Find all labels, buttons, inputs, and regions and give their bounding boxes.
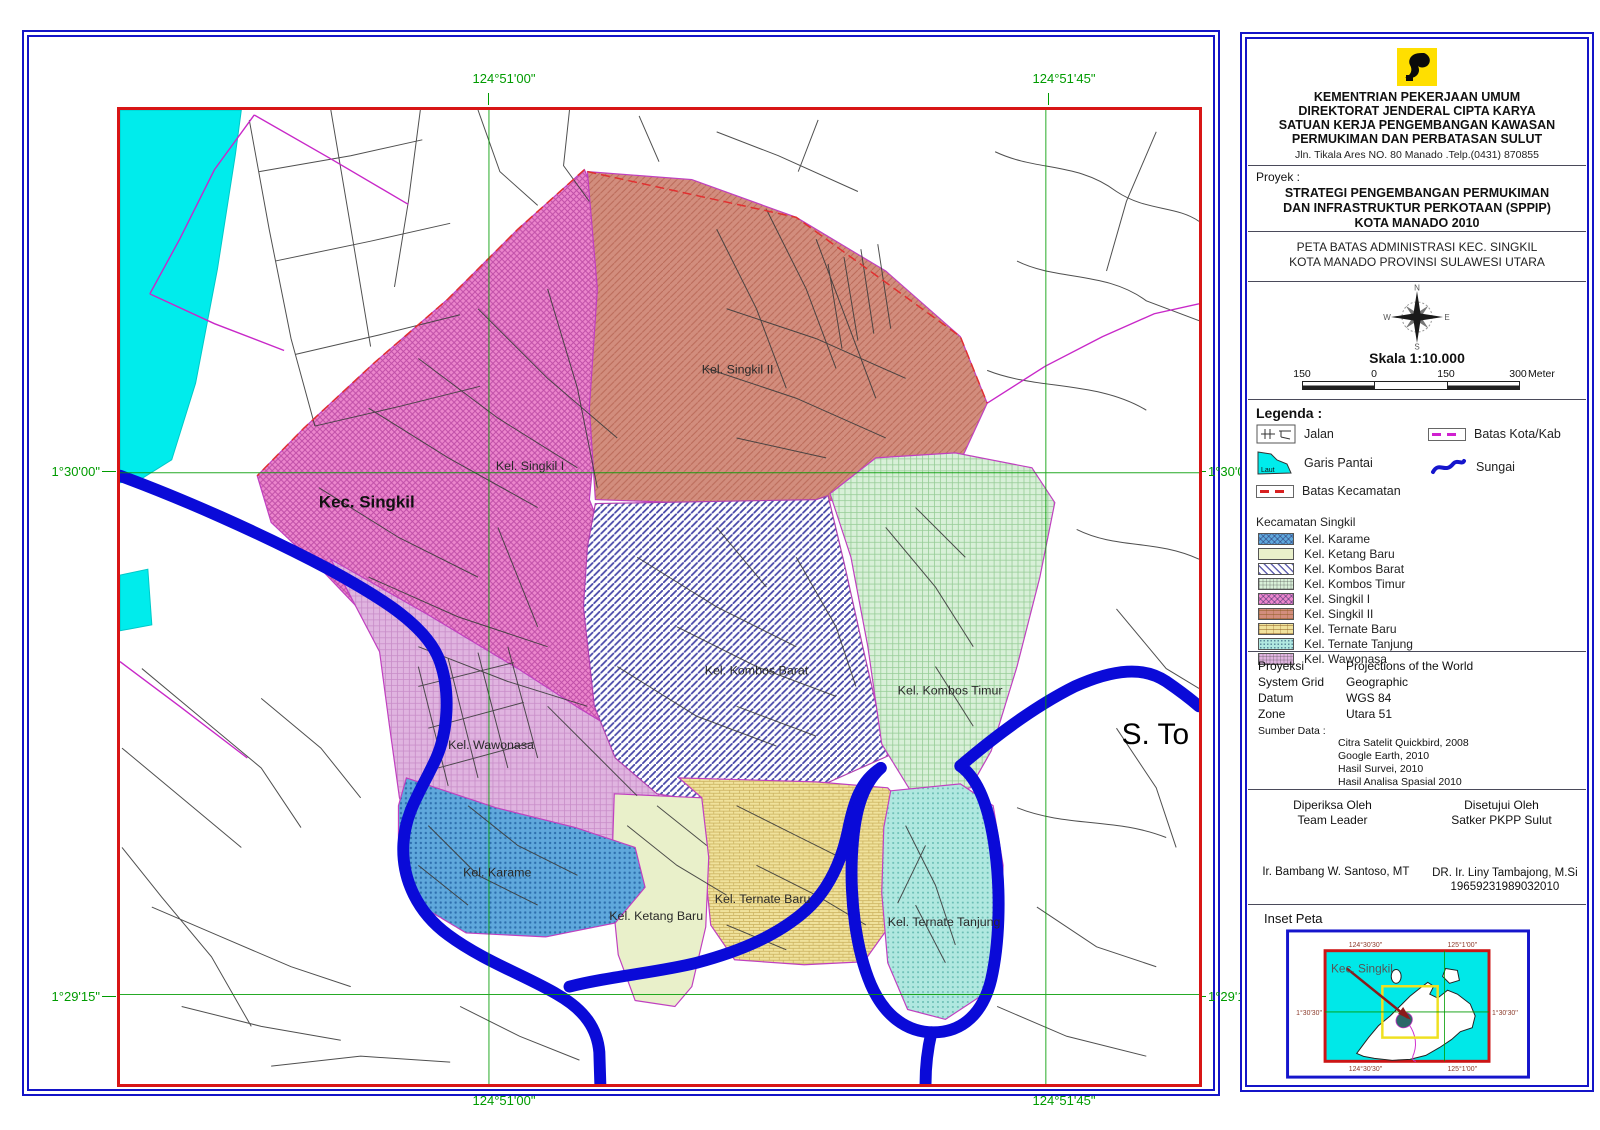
- approval-name-right: DR. Ir. Liny Tambajong, M.Si 19659231989…: [1424, 866, 1586, 894]
- swatch-kombos-barat: [1258, 563, 1294, 575]
- swatch-ternate-tanjung: [1258, 638, 1294, 650]
- legend-symbols: Jalan Laut Garis Pantai Batas Kecamatan: [1248, 424, 1586, 510]
- projection-key: Datum: [1258, 690, 1346, 706]
- pu-ministry-logo: [1397, 48, 1437, 86]
- projection-value: Geographic: [1346, 675, 1408, 689]
- kelurahan-label: Kel. Kombos Barat: [1304, 562, 1404, 576]
- legend-item-label: Batas Kecamatan: [1302, 484, 1401, 498]
- label-singkil-2: Kel. Singkil II: [702, 362, 774, 376]
- legend-item-jalan: Jalan: [1256, 424, 1334, 444]
- sea-area-small: [120, 569, 152, 631]
- coord-label-left-bottom: 1°29'15": [30, 989, 100, 1004]
- region-kombos-barat: [583, 496, 887, 806]
- inset-coord-top-left: 124°30'30'': [1349, 941, 1383, 949]
- scale-tick: 150: [1437, 368, 1455, 380]
- proyek-line: STRATEGI PENGEMBANGAN PERMUKIMAN: [1248, 186, 1586, 201]
- swatch-singkil-1: [1258, 593, 1294, 605]
- info-panel-inner: KEMENTRIAN PEKERJAAN UMUM DIREKTORAT JEN…: [1248, 40, 1586, 1084]
- label-karame: Kel. Karame: [463, 865, 531, 879]
- projection-row: DatumWGS 84: [1258, 690, 1586, 706]
- kelurahan-label: Kel. Ternate Tanjung: [1304, 637, 1413, 651]
- approval-role-left: Diperiksa Oleh Team Leader: [1248, 798, 1417, 828]
- approver-nip: 19659231989032010: [1424, 880, 1586, 894]
- section-legend: Legenda : Jalan Laut Ga: [1248, 400, 1586, 652]
- region-ternate-baru: [679, 778, 906, 965]
- map-document: 124°51'00" 124°51'45" 124°51'00" 124°51'…: [0, 0, 1600, 1130]
- org-line: PERMUKIMAN DAN PERBATASAN SULUT: [1248, 132, 1586, 146]
- inset-coord-right: 1°30'30'': [1492, 1009, 1518, 1017]
- legend-item-label: Jalan: [1304, 427, 1334, 441]
- projection-key: System Grid: [1258, 674, 1346, 690]
- kelurahan-label: Kel. Ketang Baru: [1304, 547, 1395, 561]
- coord-label-left-top: 1°30'00": [30, 464, 100, 479]
- swatch-karame: [1258, 533, 1294, 545]
- swatch-ternate-baru: [1258, 623, 1294, 635]
- sumber-data-line: Hasil Analisa Spasial 2010: [1338, 776, 1586, 789]
- legend-item-label: Garis Pantai: [1304, 456, 1373, 470]
- section-approval: Diperiksa Oleh Team Leader Disetujui Ole…: [1248, 790, 1586, 905]
- inset-title: Inset Peta: [1264, 911, 1586, 926]
- label-singkil-1: Kel. Singkil I: [496, 459, 564, 473]
- approval-name-left: Ir. Bambang W. Santoso, MT: [1248, 866, 1424, 878]
- map-sheet: 124°51'00" 124°51'45" 124°51'00" 124°51'…: [22, 30, 1220, 1096]
- projection-value: Utara 51: [1346, 707, 1392, 721]
- label-wawonasa: Kel. Wawonasa: [448, 738, 534, 752]
- inset-coord-left: 1°30'30'': [1296, 1009, 1322, 1017]
- road-icon: [1256, 424, 1296, 444]
- dashed-line-magenta-icon: [1428, 428, 1466, 441]
- legend-row-ketang-baru: Kel. Ketang Baru: [1258, 547, 1586, 561]
- inset-map: Kec. Singkil 124°30'30'' 125°1'00'' 124°…: [1268, 927, 1553, 1084]
- legend-item-garis-pantai: Laut Garis Pantai: [1256, 450, 1373, 476]
- proyek-line: KOTA MANADO 2010: [1248, 216, 1586, 231]
- kelurahan-label: Kel. Singkil II: [1304, 607, 1373, 621]
- legend-row-ternate-baru: Kel. Ternate Baru: [1258, 622, 1586, 636]
- scale-bar: 150 0 150 300 Meter: [1292, 368, 1542, 394]
- scale-bar-cell: [1374, 382, 1446, 389]
- legend-row-karame: Kel. Karame: [1258, 532, 1586, 546]
- legend-item-sungai: Sungai: [1428, 456, 1515, 478]
- coastline-icon: Laut: [1256, 450, 1296, 476]
- compass-n: N: [1414, 284, 1420, 293]
- scale-label: Skala 1:10.000: [1248, 350, 1586, 366]
- graticule-tick: [1048, 93, 1049, 105]
- section-inset: Inset Peta Kec. Singkil: [1248, 905, 1586, 1084]
- org-line: DIREKTORAT JENDERAL CIPTA KARYA: [1248, 104, 1586, 118]
- map-frame: Kec. Singkil Kel. Singkil I Kel. Singkil…: [117, 107, 1202, 1087]
- swatch-ketang-baru: [1258, 548, 1294, 560]
- role-line: Disetujui Oleh: [1417, 798, 1586, 813]
- inset-label: Kec. Singkil: [1331, 961, 1393, 975]
- coord-label-top-right: 124°51'45": [1009, 71, 1119, 86]
- scale-bar-cell: [1447, 382, 1519, 389]
- sumber-data-line: Citra Satelit Quickbird, 2008: [1338, 737, 1586, 750]
- role-line: Diperiksa Oleh: [1248, 798, 1417, 813]
- role-line: Satker PKPP Sulut: [1417, 813, 1586, 828]
- scale-bar-cell: [1303, 382, 1374, 389]
- kelurahan-label: Kel. Singkil I: [1304, 592, 1370, 606]
- org-address: Jln. Tikala Ares NO. 80 Manado .Telp.(04…: [1248, 149, 1586, 161]
- legend-row-singkil-2: Kel. Singkil II: [1258, 607, 1586, 621]
- kelurahan-label: Kel. Ternate Baru: [1304, 622, 1397, 636]
- legend-row-kombos-timur: Kel. Kombos Timur: [1258, 577, 1586, 591]
- section-scale: N S W E Skala 1:10.000 150 0 150 300 Met…: [1248, 282, 1586, 400]
- graticule-tick: [488, 93, 489, 105]
- scale-tick: 150: [1293, 368, 1311, 380]
- projection-row: System GridGeographic: [1258, 674, 1586, 690]
- sumber-data-line: Hasil Survei, 2010: [1338, 763, 1586, 776]
- scale-unit: Meter: [1528, 368, 1555, 380]
- section-proyek: Proyek : STRATEGI PENGEMBANGAN PERMUKIMA…: [1248, 166, 1586, 232]
- sumber-data-label: Sumber Data :: [1258, 725, 1586, 737]
- section-header: KEMENTRIAN PEKERJAAN UMUM DIREKTORAT JEN…: [1248, 40, 1586, 166]
- coord-label-bottom-right: 124°51'45": [1009, 1093, 1119, 1108]
- label-kombos-barat: Kel. Kombos Barat: [705, 664, 809, 678]
- label-ketang-baru: Kel. Ketang Baru: [609, 909, 703, 923]
- approval-role-right: Disetujui Oleh Satker PKPP Sulut: [1417, 798, 1586, 828]
- kelurahan-label: Kel. Kombos Timur: [1304, 577, 1405, 591]
- map-title-line: PETA BATAS ADMINISTRASI KEC. SINGKIL: [1248, 240, 1586, 255]
- map-canvas: Kec. Singkil Kel. Singkil I Kel. Singkil…: [120, 110, 1199, 1084]
- info-panel: KEMENTRIAN PEKERJAAN UMUM DIREKTORAT JEN…: [1240, 32, 1594, 1092]
- map-title-line: KOTA MANADO PROVINSI SULAWESI UTARA: [1248, 255, 1586, 270]
- projection-row: ZoneUtara 51: [1258, 706, 1586, 722]
- laut-label: Laut: [1261, 467, 1275, 474]
- compass-rose: N S W E: [1382, 284, 1452, 350]
- proyek-label: Proyek :: [1256, 170, 1586, 184]
- kelurahan-label: Kel. Karame: [1304, 532, 1370, 546]
- section-projection: ProyeksiProjections of the World System …: [1248, 652, 1586, 790]
- dashed-line-red-icon: [1256, 485, 1294, 498]
- label-river-tondano: S. To: [1122, 718, 1189, 751]
- inset-coord-bottom-left: 124°30'30'': [1349, 1065, 1383, 1073]
- inset-coord-bottom-right: 125°1'00'': [1447, 1065, 1477, 1073]
- legend-district-title: Kecamatan Singkil: [1256, 515, 1586, 529]
- compass-w: W: [1383, 313, 1391, 322]
- legend-item-batas-kecamatan: Batas Kecamatan: [1256, 484, 1401, 498]
- sumber-data-line: Google Earth, 2010: [1338, 750, 1586, 763]
- legend-item-label: Sungai: [1476, 460, 1515, 474]
- sea-area: [120, 110, 241, 483]
- swatch-singkil-2: [1258, 608, 1294, 620]
- projection-value: WGS 84: [1346, 691, 1391, 705]
- projection-key: Proyeksi: [1258, 658, 1346, 674]
- org-line: KEMENTRIAN PEKERJAAN UMUM: [1248, 90, 1586, 104]
- projection-row: ProyeksiProjections of the World: [1258, 658, 1586, 674]
- proyek-line: DAN INFRASTRUKTUR PERKOTAAN (SPPIP): [1248, 201, 1586, 216]
- legend-row-kombos-barat: Kel. Kombos Barat: [1258, 562, 1586, 576]
- legend-row-ternate-tanjung: Kel. Ternate Tanjung: [1258, 637, 1586, 651]
- legend-row-singkil-1: Kel. Singkil I: [1258, 592, 1586, 606]
- river-icon: [1428, 456, 1468, 478]
- org-line: SATUAN KERJA PENGEMBANGAN KAWASAN: [1248, 118, 1586, 132]
- graticule-tick: [102, 996, 116, 997]
- approver-name: DR. Ir. Liny Tambajong, M.Si: [1424, 866, 1586, 880]
- legend-title: Legenda :: [1256, 405, 1586, 421]
- region-singkil-2: [587, 172, 987, 504]
- compass-s: S: [1414, 343, 1419, 351]
- compass-e: E: [1444, 313, 1449, 322]
- scale-bar-graphic: [1302, 381, 1520, 390]
- graticule-tick: [102, 471, 116, 472]
- scale-tick: 300: [1509, 368, 1527, 380]
- projection-key: Zone: [1258, 706, 1346, 722]
- label-ternate-tanjung: Kel. Ternate Tanjung: [888, 915, 1001, 929]
- coord-label-top-left: 124°51'00": [449, 71, 559, 86]
- label-ternate-baru: Kel. Ternate Baru: [715, 892, 811, 906]
- label-kec-singkil: Kec. Singkil: [319, 493, 415, 512]
- coord-label-bottom-left: 124°51'00": [449, 1093, 559, 1108]
- role-line: Team Leader: [1248, 813, 1417, 828]
- inset-coord-top-right: 125°1'00'': [1447, 941, 1477, 949]
- swatch-kombos-timur: [1258, 578, 1294, 590]
- label-kombos-timur: Kel. Kombos Timur: [898, 683, 1003, 697]
- section-map-title: PETA BATAS ADMINISTRASI KEC. SINGKIL KOT…: [1248, 232, 1586, 282]
- projection-value: Projections of the World: [1346, 659, 1473, 673]
- legend-item-label: Batas Kota/Kab: [1474, 427, 1561, 441]
- scale-tick: 0: [1371, 368, 1377, 380]
- legend-item-batas-kota: Batas Kota/Kab: [1428, 427, 1561, 441]
